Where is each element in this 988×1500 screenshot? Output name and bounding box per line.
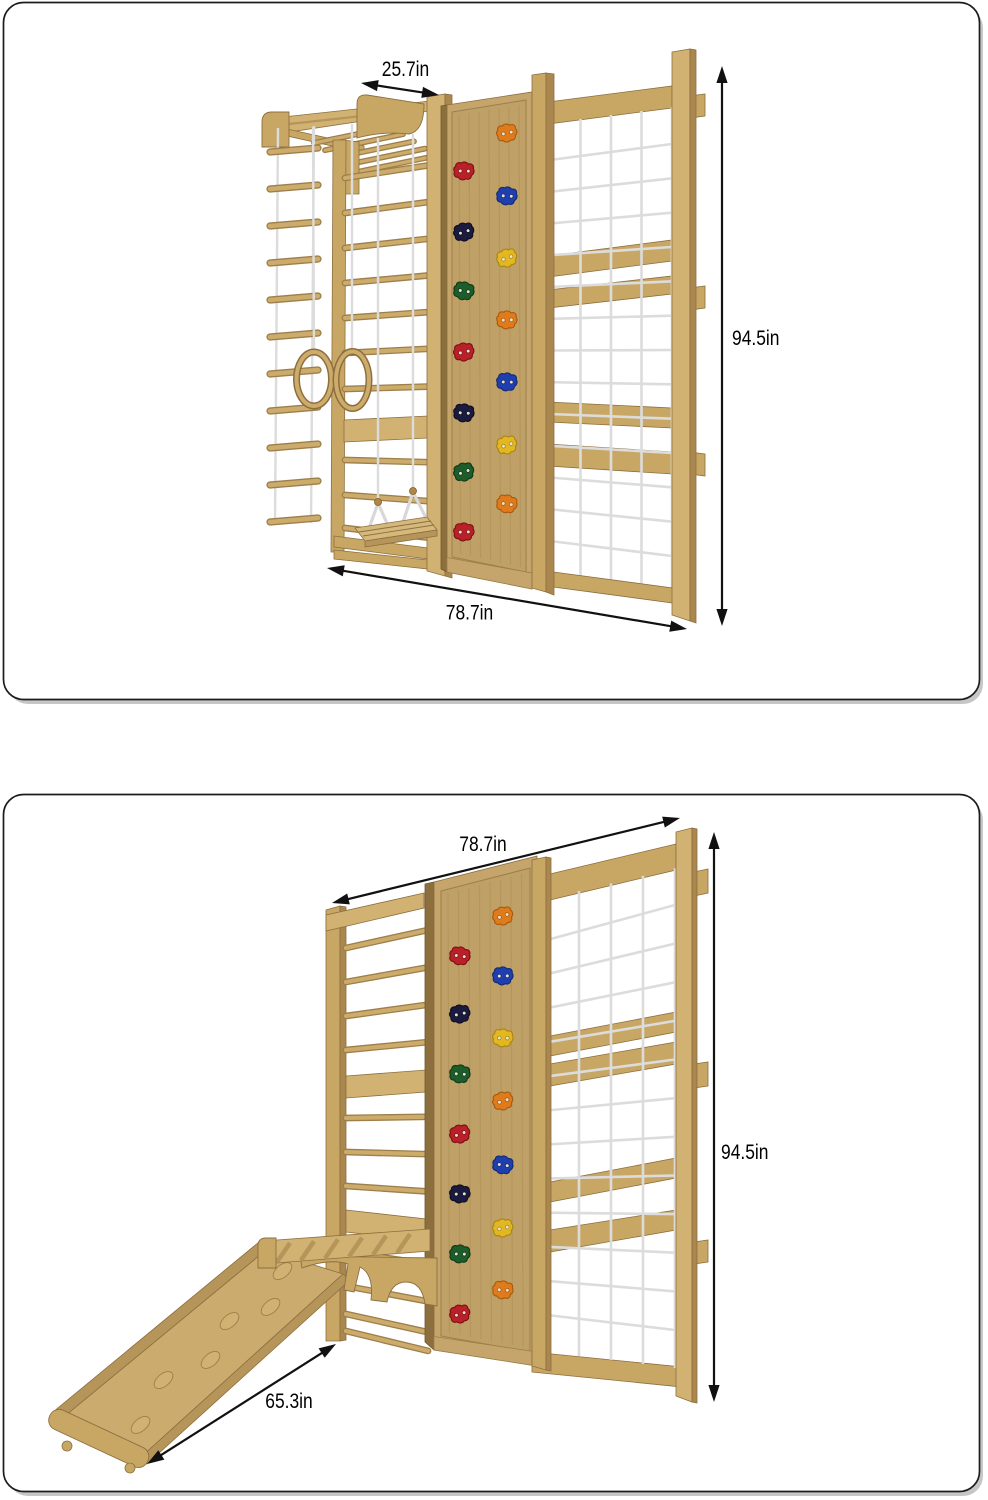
svg-text:78.7in: 78.7in (459, 833, 507, 856)
svg-text:94.5in: 94.5in (732, 327, 780, 350)
svg-text:25.7in: 25.7in (382, 58, 430, 81)
svg-text:65.3in: 65.3in (265, 1390, 313, 1413)
svg-text:94.5in: 94.5in (721, 1141, 769, 1164)
svg-text:78.7in: 78.7in (446, 602, 494, 625)
